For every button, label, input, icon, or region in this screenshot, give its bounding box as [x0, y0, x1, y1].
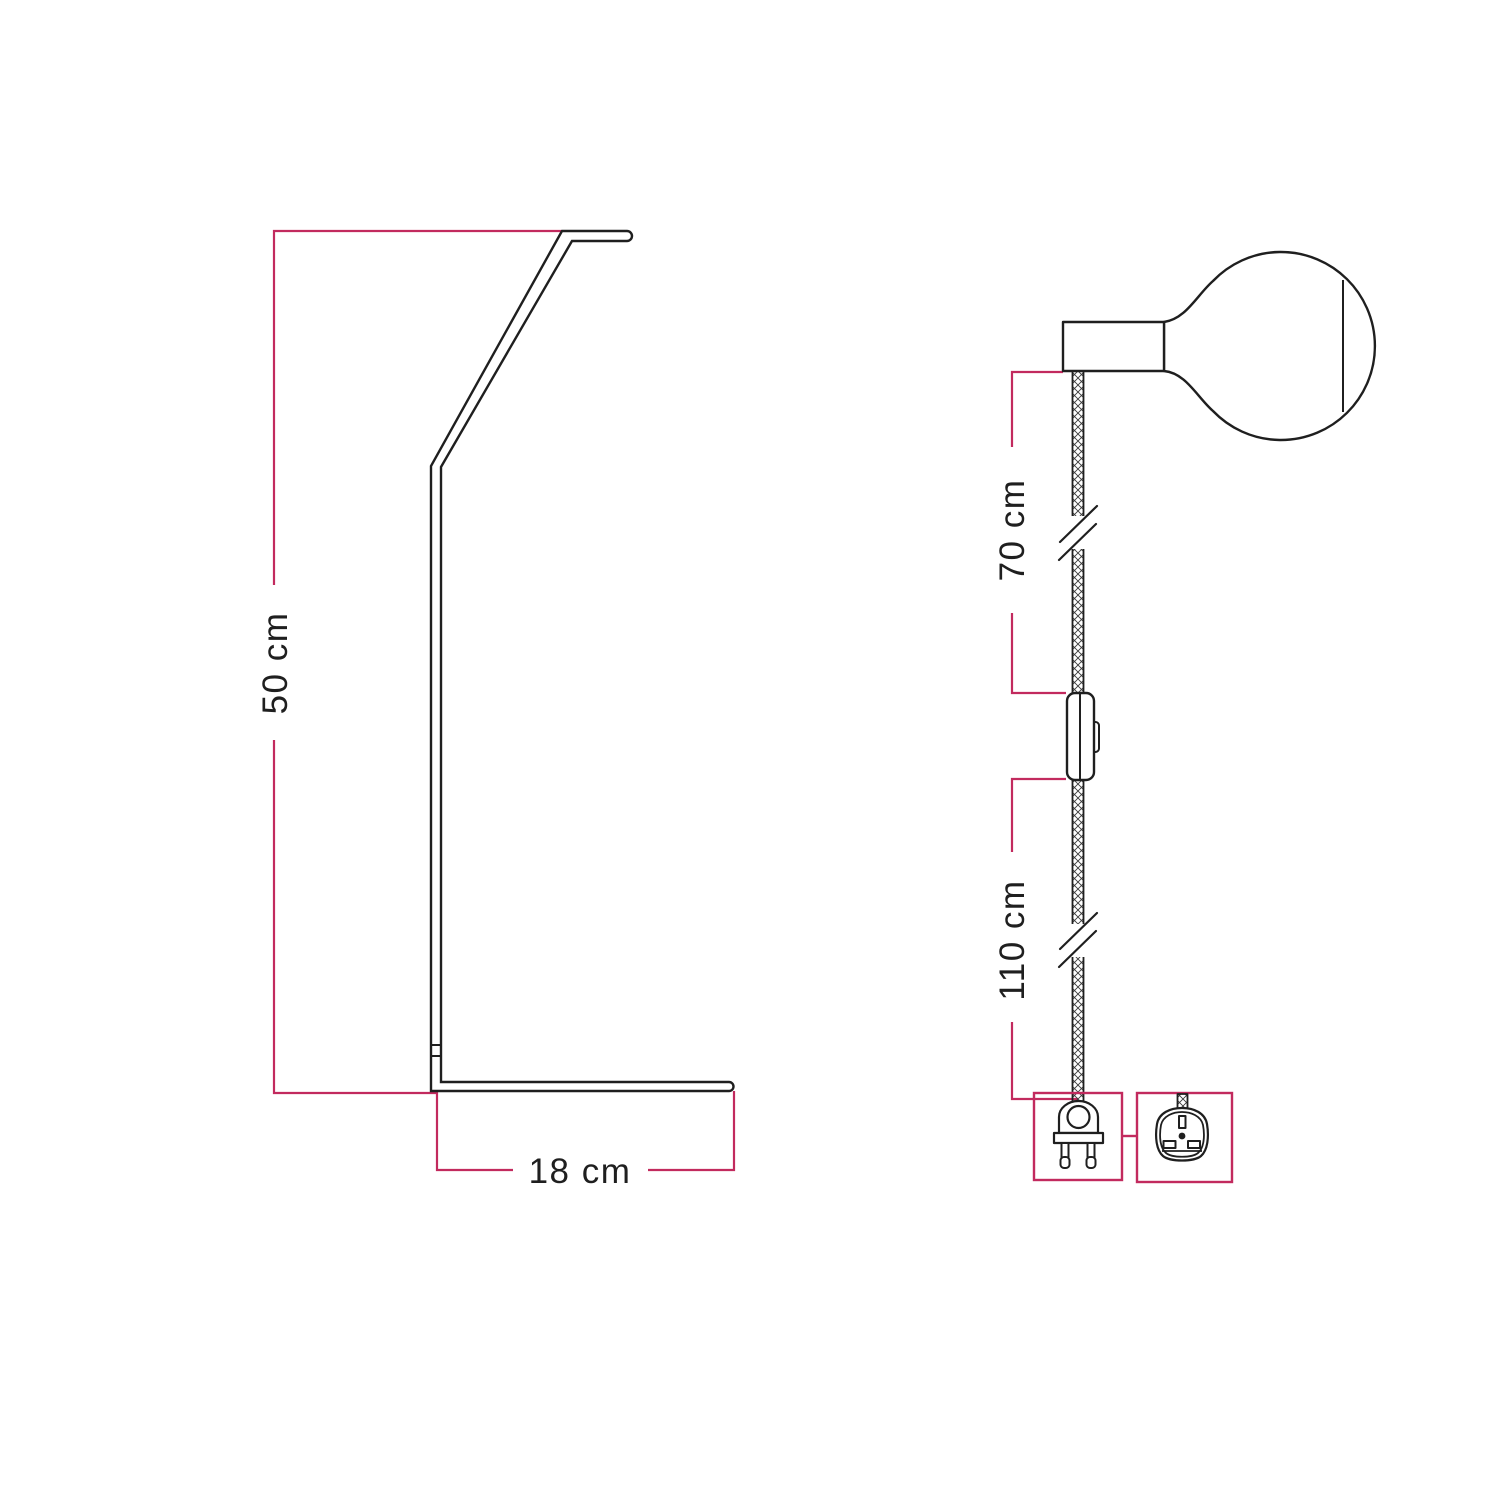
euro-plug-ring	[1068, 1106, 1090, 1128]
pendant-view: 70 cm 110 cm	[993, 252, 1375, 1182]
stand-height-label: 50 cm	[256, 612, 295, 715]
uk-plug-slot-right	[1188, 1141, 1200, 1148]
cable-segment-3	[1073, 779, 1084, 924]
euro-plug-icon	[1054, 1101, 1103, 1168]
uk-plug-slot-left	[1164, 1141, 1176, 1148]
uk-plug-icon	[1156, 1094, 1208, 1161]
euro-plug-pin-right-tip	[1087, 1157, 1096, 1168]
cable-segment-1	[1073, 371, 1084, 516]
cable-upper-length-label: 70 cm	[993, 479, 1032, 582]
euro-plug-base	[1054, 1133, 1103, 1143]
side-view-stand: 50 cm 18 cm	[256, 231, 734, 1191]
stand-base-depth-label: 18 cm	[529, 1152, 632, 1191]
stand-dimension-labels: 50 cm 18 cm	[256, 612, 631, 1191]
inline-switch	[1067, 693, 1099, 780]
lamp-socket	[1063, 322, 1164, 371]
stand-profile	[431, 231, 734, 1091]
lamp-dimension-diagram: 50 cm 18 cm	[0, 0, 1500, 1500]
height-dimension-line	[274, 231, 734, 1170]
diagram-canvas: 50 cm 18 cm	[0, 0, 1500, 1500]
cable-segment-4	[1073, 957, 1084, 1104]
euro-plug-pins	[1061, 1143, 1096, 1168]
stand-outline	[431, 231, 734, 1091]
uk-plug-center-dot	[1179, 1133, 1186, 1140]
cable-lower-length-label: 110 cm	[993, 879, 1032, 1000]
pendant-dimension-labels: 70 cm 110 cm	[993, 479, 1032, 1001]
euro-plug-pin-left-tip	[1061, 1157, 1070, 1168]
stand-dimension-lines	[274, 231, 734, 1170]
cable-segment-2	[1073, 549, 1084, 694]
bulb-and-socket	[1063, 252, 1375, 440]
uk-plug-slot-top	[1179, 1116, 1186, 1128]
